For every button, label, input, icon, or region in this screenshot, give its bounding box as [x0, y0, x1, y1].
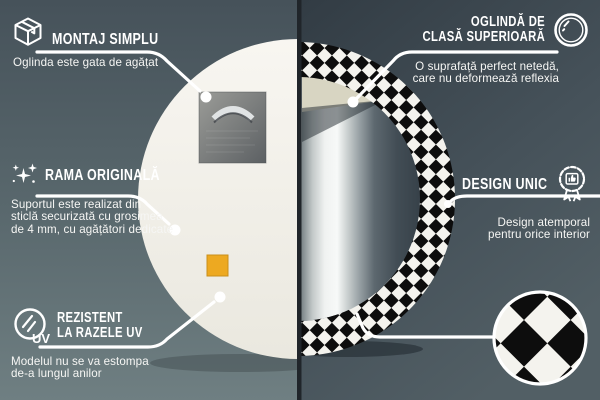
sparkles-icon: [11, 161, 40, 190]
split-divider: [297, 0, 302, 400]
callout-subtitle: Modelul nu se va estompa de-a lungul ani…: [11, 356, 167, 381]
callout-subtitle: O suprafață perfect netedă, care nu defo…: [413, 61, 590, 86]
uv-sun-icon: UV: [11, 306, 51, 346]
callout-title: MONTAJ SIMPLU: [52, 31, 188, 48]
callout-subtitle: Suportul este realizat din sticlă securi…: [11, 199, 192, 236]
product-infographic: MONTAJ SIMPLU Oglinda este gata de agăța…: [0, 0, 600, 400]
callout-subtitle: Oglinda este gata de agățat: [13, 57, 188, 69]
callout-subtitle: Design atemporal pentru orice interior: [488, 217, 590, 242]
callout-uv: UV REZISTENT LA RAZELE UV Modelul nu se …: [11, 306, 167, 381]
callout-title: RAMA ORIGINALĂ: [45, 167, 192, 184]
uv-label: UV: [32, 331, 50, 346]
award-badge-icon: [554, 164, 590, 204]
package-box-icon: [11, 15, 45, 48]
callout-design: DESIGN UNIC Design atemporal pentru oric…: [438, 164, 590, 242]
pattern-swatch: [494, 292, 586, 384]
orange-sticker: [207, 255, 228, 276]
callout-rama: RAMA ORIGINALĂ Suportul este realizat di…: [11, 161, 192, 236]
callout-title: DESIGN UNIC: [438, 176, 547, 193]
mirror-shine-icon: [552, 11, 590, 49]
callout-montaj: MONTAJ SIMPLU Oglinda este gata de agăța…: [11, 15, 188, 69]
callout-oglinda: OGLINDĂ DE CLASĂ SUPERIOARĂ O suprafață …: [388, 11, 590, 86]
hanger-plate: [199, 92, 266, 163]
